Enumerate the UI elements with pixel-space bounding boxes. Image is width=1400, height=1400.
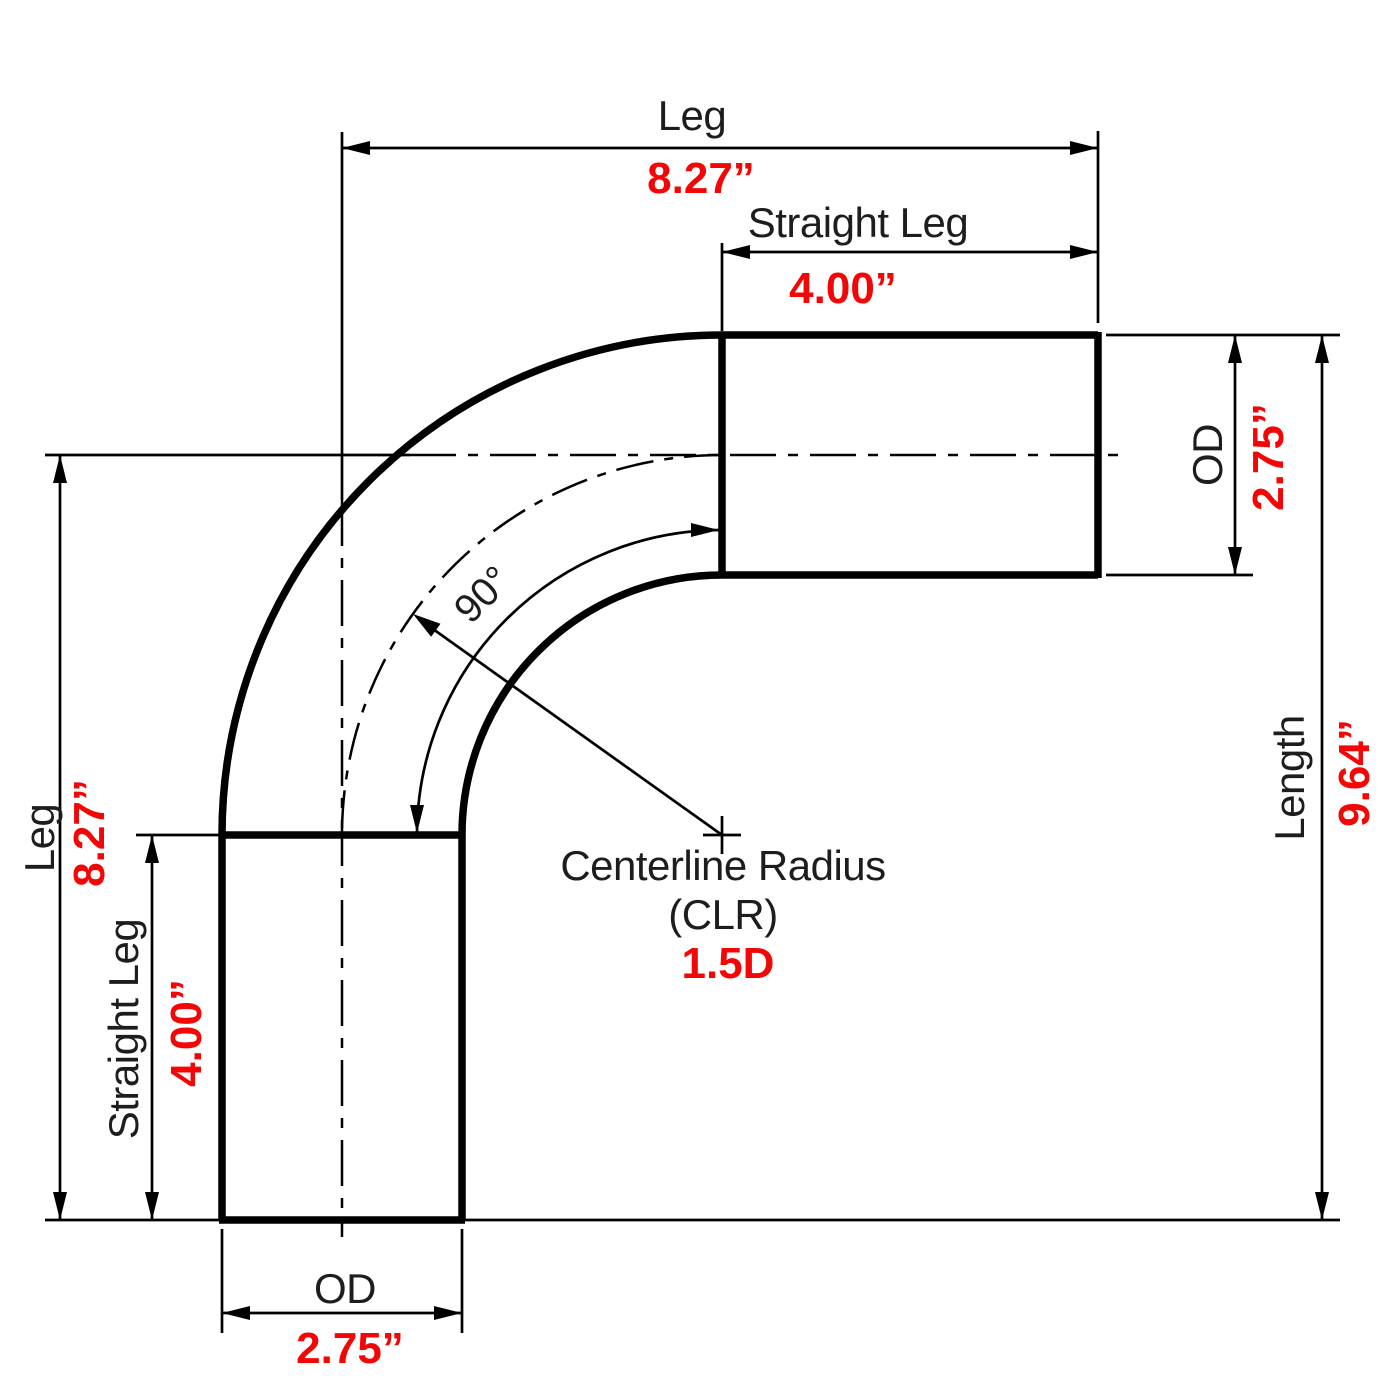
extension-lines	[45, 131, 1340, 1333]
top-straight-leg-label: Straight Leg	[748, 199, 969, 246]
arrowhead-left-leg-top	[53, 455, 67, 483]
clr-label-line1: Centerline Radius	[560, 842, 885, 889]
arrowhead-left-straight-leg-bottom	[145, 1192, 159, 1220]
top-leg-value: 8.27”	[647, 154, 755, 203]
pipe-body	[219, 332, 1098, 1220]
clr-label-line2: (CLR)	[668, 891, 778, 938]
arrowhead-straight-leg-left	[722, 245, 750, 259]
clr-leader-line	[433, 629, 722, 835]
dimension-lines	[60, 148, 1322, 1313]
bottom-od-label: OD	[314, 1265, 376, 1312]
pipe-outer-edge	[222, 335, 1098, 1220]
centerline-arc	[342, 455, 722, 835]
arrowhead-top-leg-right	[1070, 141, 1098, 155]
arrowhead-left-leg-bottom	[53, 1192, 67, 1220]
arrowhead-right-od-bottom	[1228, 547, 1242, 575]
arrowheads	[53, 141, 1329, 1320]
arrowhead-clr-leader	[413, 614, 441, 637]
drawing-canvas: Leg 8.27” Straight Leg 4.00” OD 2.75” Le…	[0, 0, 1400, 1400]
right-length-value: 9.64”	[1330, 719, 1379, 827]
bend-angle-label: 90°	[446, 558, 520, 632]
clr-value: 1.5D	[682, 939, 775, 988]
top-leg-label: Leg	[658, 92, 727, 139]
arrowhead-angle-arc-left	[410, 805, 424, 833]
bend-dimension-diagram: Leg 8.27” Straight Leg 4.00” OD 2.75” Le…	[0, 0, 1400, 1400]
right-od-label: OD	[1184, 424, 1231, 486]
top-straight-leg-value: 4.00”	[789, 264, 897, 313]
left-straight-leg-label: Straight Leg	[100, 919, 147, 1140]
arrowhead-bottom-od-right	[434, 1306, 462, 1320]
arrowhead-length-top	[1315, 335, 1329, 363]
right-od-value: 2.75”	[1244, 403, 1293, 511]
angle-dimension-arc	[417, 530, 720, 833]
arrowhead-right-od-top	[1228, 335, 1242, 363]
left-leg-value: 8.27”	[65, 779, 114, 887]
left-leg-label: Leg	[16, 804, 63, 873]
bottom-od-value: 2.75”	[296, 1324, 404, 1373]
left-straight-leg-value: 4.00”	[162, 979, 211, 1087]
arrowhead-straight-leg-right	[1070, 245, 1098, 259]
right-length-label: Length	[1266, 715, 1313, 840]
arrowhead-bottom-od-left	[222, 1306, 250, 1320]
pipe-inner-edge	[462, 575, 1098, 1220]
arrowhead-angle-arc-top	[691, 523, 719, 537]
arrowhead-top-leg-left	[342, 141, 370, 155]
arrowhead-left-straight-leg-top	[145, 835, 159, 863]
arrowhead-length-bottom	[1315, 1192, 1329, 1220]
